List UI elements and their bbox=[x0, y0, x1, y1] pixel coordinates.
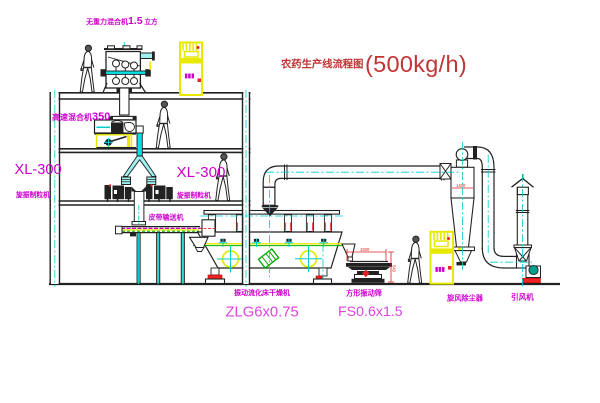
svg-text:(500kg/h): (500kg/h) bbox=[365, 51, 467, 77]
svg-text:旋振制粒机: 旋振制粒机 bbox=[176, 191, 211, 200]
svg-text:旋振制粒机: 旋振制粒机 bbox=[15, 190, 50, 199]
svg-text:引风机: 引风机 bbox=[511, 292, 534, 302]
svg-text:方形振动筛: 方形振动筛 bbox=[346, 289, 382, 298]
svg-text:XL-300: XL-300 bbox=[15, 162, 62, 178]
svg-text:FS0.6x1.5: FS0.6x1.5 bbox=[338, 304, 403, 320]
svg-text:540: 540 bbox=[392, 265, 397, 273]
svg-text:▮▮▮: ▮▮▮ bbox=[435, 267, 445, 273]
svg-text:振动流化床干燥机: 振动流化床干燥机 bbox=[234, 288, 290, 297]
svg-text:高速混合机350: 高速混合机350 bbox=[52, 111, 110, 123]
svg-text:无重力混合机1.5 立方: 无重力混合机1.5 立方 bbox=[85, 15, 158, 27]
svg-text:皮带输送机: 皮带输送机 bbox=[148, 213, 184, 222]
svg-text:ZLG6x0.75: ZLG6x0.75 bbox=[226, 305, 299, 321]
svg-text:1500: 1500 bbox=[360, 247, 370, 252]
svg-text:1400: 1400 bbox=[456, 183, 466, 188]
svg-text:旋风除尘器: 旋风除尘器 bbox=[446, 294, 484, 303]
svg-text:▮▮▮: ▮▮▮ bbox=[185, 74, 195, 80]
svg-text:农药生产线流程图: 农药生产线流程图 bbox=[280, 58, 363, 71]
svg-text:XL-300: XL-300 bbox=[177, 164, 226, 181]
